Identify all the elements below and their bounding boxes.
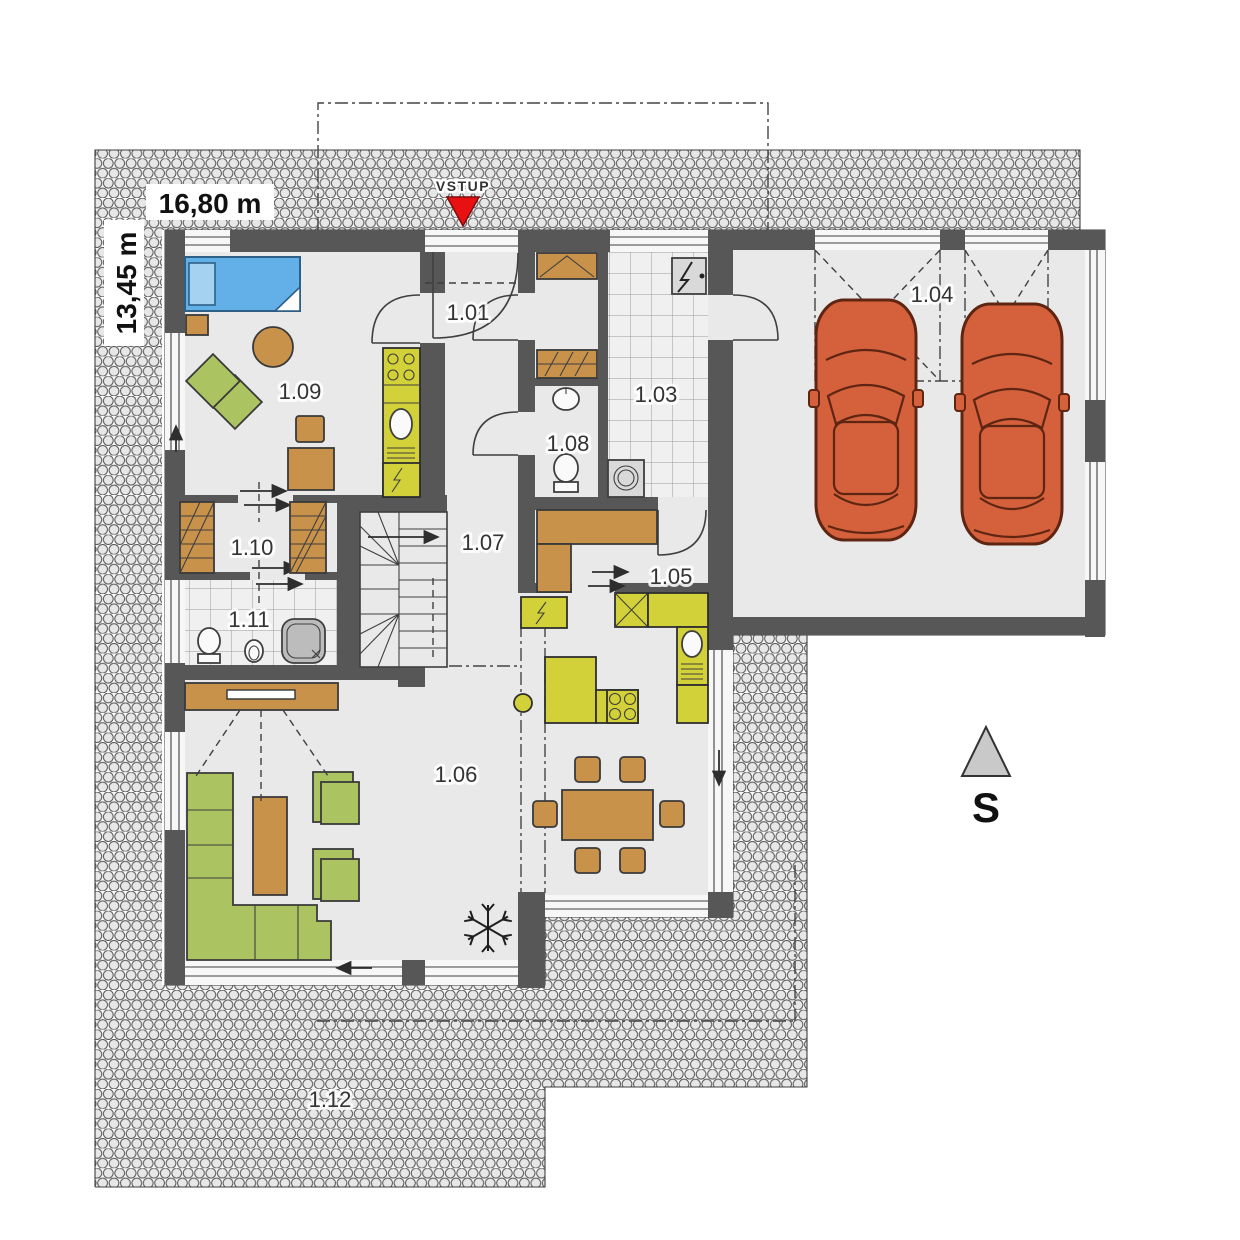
floor-plan-svg: VSTUP bbox=[0, 0, 1240, 1240]
round-table bbox=[253, 327, 293, 367]
room-label-1-12: 1.12 bbox=[309, 1087, 352, 1112]
dining-table bbox=[562, 790, 653, 840]
desk-chair bbox=[296, 416, 324, 442]
dining-chair bbox=[620, 757, 645, 782]
room-label-1-03: 1.03 bbox=[635, 382, 678, 407]
desk bbox=[288, 448, 334, 490]
dining-chair bbox=[575, 757, 600, 782]
toilet bbox=[554, 454, 578, 482]
bed-pillow bbox=[189, 263, 215, 305]
room-label-1-04: 1.04 bbox=[911, 282, 954, 307]
compass-label: S bbox=[972, 784, 1000, 831]
room-label-1-05: 1.05 bbox=[650, 564, 693, 589]
floor-plan-canvas: VSTUP bbox=[0, 0, 1240, 1240]
bidet bbox=[245, 640, 263, 662]
kitchen-sink bbox=[682, 631, 702, 657]
room-label-1-08: 1.08 bbox=[547, 431, 590, 456]
dining-chair bbox=[620, 848, 645, 873]
toilet bbox=[198, 628, 220, 654]
stool bbox=[514, 694, 532, 712]
kitchenette bbox=[383, 348, 420, 497]
dimension-height-label: 13,45 m bbox=[111, 232, 142, 335]
kitchenette-sink bbox=[390, 409, 412, 439]
dining-chair bbox=[660, 801, 684, 827]
car-1 bbox=[809, 300, 923, 540]
room-label-1-07: 1.07 bbox=[462, 530, 505, 555]
dimension-width-label: 16,80 m bbox=[159, 188, 262, 219]
room-label-1-01: 1.01 bbox=[447, 300, 490, 325]
dining-chair bbox=[575, 848, 600, 873]
car-2 bbox=[955, 304, 1069, 544]
compass: S bbox=[962, 727, 1010, 831]
coffee-table bbox=[253, 797, 287, 895]
room-label-1-06: 1.06 bbox=[435, 762, 478, 787]
room-label-1-09: 1.09 bbox=[279, 379, 322, 404]
room-label-1-11: 1.11 bbox=[228, 607, 269, 632]
room-label-1-10: 1.10 bbox=[231, 535, 274, 560]
staircase bbox=[360, 512, 447, 667]
compass-north-triangle-icon bbox=[962, 727, 1010, 776]
wardrobe bbox=[537, 253, 597, 279]
armchair bbox=[321, 859, 359, 901]
dining-chair bbox=[533, 801, 557, 827]
armchair bbox=[321, 782, 359, 824]
nightstand bbox=[186, 315, 208, 335]
entrance-label: VSTUP bbox=[436, 178, 490, 194]
